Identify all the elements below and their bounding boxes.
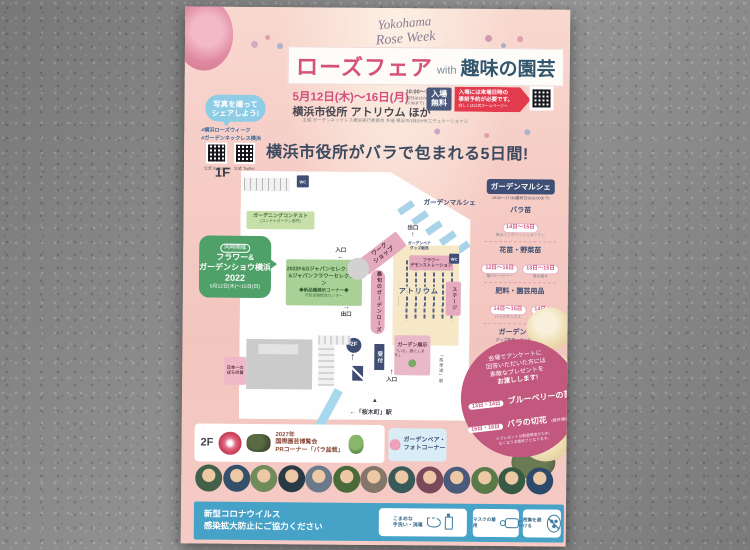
prize-circle: 会場でアンケートに 回答いただいた方には 素敵なプレゼントを お渡しします! 1… [455, 333, 571, 464]
measure-label-mask: マスクの着用 [473, 517, 498, 529]
map-stairs-right [318, 344, 334, 386]
share-line2: シェアしよう! [212, 108, 260, 117]
admission-line2: 無料 [431, 99, 447, 108]
portrait-photo [443, 467, 470, 494]
map-stairs-top [244, 178, 290, 191]
co-event-name1: フラワー& [216, 252, 254, 262]
marche-hours: 10:00〜17:00(最終日は16:00まで) [479, 196, 563, 202]
garden-exhibit-box: ガーデン展示 「いえ、庭にします」 [394, 335, 430, 375]
marche-vendor: 横浜植木 [522, 274, 559, 279]
portrait-photo [223, 465, 250, 492]
mask-icon [504, 518, 519, 528]
portrait-photo [498, 467, 525, 494]
atrium-label: アトリウム [397, 286, 441, 296]
service-block-light [258, 344, 298, 354]
expo-line3: PRコーナー「バラ盆栽」 [275, 447, 343, 455]
portrait-photo [333, 466, 360, 493]
prize-item-note: (提供:横浜植木) [551, 416, 570, 423]
share-hashtags: #横浜ローズウィーク #ガーデンネックレス横浜 [201, 127, 261, 143]
rose-photo-top-left [181, 6, 234, 70]
co-event-name2: ガーデンショウ横浜 [199, 262, 271, 273]
floral-decoration [277, 43, 283, 49]
garden-bear-icon [389, 439, 400, 450]
handwash-icon [427, 517, 441, 527]
measure-label-crowd: 密集を避ける [523, 517, 545, 529]
exit-atrium-top: 出口 ↑ [407, 225, 418, 239]
garden-rose-box: 最旬のガーデンローズ [370, 270, 385, 334]
avoid-crowds-icon [546, 515, 561, 533]
arrow-up-2f: ↑ [350, 352, 355, 363]
portrait-photo [361, 466, 388, 493]
bonsai-photo [246, 434, 270, 452]
qr-code-instagram [206, 143, 227, 164]
rose-fair-flyer: Yokohama Rose Week ローズフェア with 趣味の園芸 5月1… [181, 6, 571, 546]
triangle-mark: ▲ [372, 398, 378, 404]
entrance-bottom-label: 入口 [386, 377, 397, 383]
exhibit-line2: 「いえ、庭にします」 [394, 349, 430, 358]
share-line1: 写真を撮って [213, 99, 258, 108]
entrance-top: 入口 ← [335, 248, 346, 262]
exit-mid-label: 出口 [341, 311, 352, 317]
marche-days: 12日〜16日 [481, 264, 518, 274]
garden-rose-label: 最旬のガーデンローズ [375, 271, 382, 333]
measure-box-handwash: こまめな 手洗い・消毒 [379, 508, 467, 537]
map-garden-marche-label: ガーデンマルシェ [424, 196, 476, 206]
portrait-photo [250, 465, 277, 492]
hashtag-1: #横浜ローズウィーク [201, 127, 261, 135]
wc-icon: WC [297, 175, 309, 187]
measure-label2: 手洗い・消毒 [393, 522, 423, 529]
wc-icon-atrium: WC [449, 254, 459, 264]
contest-line2: (コンテナガーデン部門) [246, 219, 314, 224]
marche-title: ガーデンマルシェ [487, 179, 555, 195]
marche-section-name: 肥料・園芸用品 [478, 286, 562, 297]
organizer-credit: 主催 ガーデンネックレス横浜実行委員会 共催 横浜市/(株)NHKエデュケーショ… [302, 117, 468, 124]
covid-line1: 新型コロナウイルス [204, 509, 323, 522]
prize-days: 15日・16日 [468, 424, 503, 434]
stage-box: ステージ [446, 282, 461, 316]
marche-vendor: 亀川ナーセリー [481, 274, 518, 279]
tree-icon [347, 258, 369, 280]
prize-item: バラの切花 [507, 416, 548, 429]
selection-line4: 市民協働推進センター [305, 293, 343, 298]
title-main: ローズフェア [296, 49, 433, 82]
covid-footer: 新型コロナウイルス 感染拡大防止にご協力ください こまめな 手洗い・消毒 マスク… [194, 501, 564, 542]
no1-rose-line2: ばらの苗 [227, 371, 244, 376]
floral-decoration [251, 41, 258, 48]
photo-corner-line1: ガーデンベア・ [404, 437, 446, 445]
arrow-up-icon: ↑ [407, 231, 418, 239]
measure-box-crowd: 密集を避ける [523, 509, 561, 537]
expo-rose-emblem [218, 431, 241, 454]
floor-1f-label: 1F [215, 165, 230, 180]
floral-decoration [484, 133, 489, 138]
reception-label: 受付 [375, 351, 383, 364]
entrance-bottom: ↑ 入口 [386, 368, 397, 383]
portrait-photo [278, 465, 305, 492]
share-bubble: 写真を撮って シェアしよう! [205, 95, 265, 123]
covid-text: 新型コロナウイルス 感染拡大防止にご協力ください [204, 509, 323, 534]
qr-code-reservation [529, 86, 553, 110]
floor-2f-label: 2F [200, 436, 213, 448]
mascot-photo [349, 434, 364, 453]
floral-decoration [524, 129, 530, 135]
portrait-photo [195, 464, 222, 491]
qr-code-twitter [234, 143, 255, 164]
admission-free-badge: 入場 無料 [426, 87, 451, 110]
gardening-contest-box: ガーデニングコンテスト (コンテナガーデン部門) [246, 211, 314, 230]
stage-label: ステージ [450, 287, 456, 311]
marche-vendor: ハイポネックス [489, 315, 526, 320]
floral-decoration [517, 36, 523, 42]
co-event-bubble-tail [270, 259, 277, 269]
reservation-line3: 詳しくは公式ホームページへ [458, 104, 530, 109]
second-floor-bar: 2F 2027年 国際園芸博覧会 PRコーナー「バラ盆栽」 [194, 423, 384, 463]
arrow-left-icon: ← [335, 254, 346, 262]
headline: 横浜市役所がバラで包まれる5日間! [266, 138, 566, 165]
floral-decoration [434, 129, 440, 135]
title-with: with [437, 65, 457, 77]
co-event-year: 2022 [225, 272, 245, 283]
co-event-date: 5月12日(木)〜15日(日) [210, 283, 261, 290]
portrait-photo [305, 465, 332, 492]
reception-box: 受付 [374, 344, 384, 370]
portrait-photo [526, 467, 553, 494]
prize-item: ブルーベリーの苗 [507, 389, 570, 405]
map-stairs-right-top [318, 336, 350, 345]
bear-photo-corner-box: ガーデンベア・ フォトコーナー [388, 428, 446, 462]
co-event-tag: 同時開催 [220, 243, 250, 252]
co-event-bubble: 同時開催 フラワー& ガーデンショウ横浜 2022 5月12日(木)〜15日(日… [199, 235, 272, 298]
title-banner: ローズフェア with 趣味の園芸 [288, 46, 564, 86]
sanitizer-bottle-icon [445, 516, 453, 529]
escalator-icon [352, 366, 363, 381]
portrait-photo [471, 467, 498, 494]
prize-days: 13日・14日 [469, 400, 504, 410]
reservation-ribbon: 入場には来場日時の 事前予約が必要です。 詳しくは公式ホームページへ [454, 87, 530, 113]
floral-decoration [265, 35, 270, 40]
marche-days: 14日〜15日 [489, 305, 526, 315]
station-bottom-label: ←「桜木町」駅 [350, 407, 392, 416]
marche-days: 14日〜15日 [502, 223, 539, 233]
portrait-photo [416, 466, 443, 493]
share-bubble-tail [222, 121, 230, 127]
arrow-right-icon: → [341, 304, 352, 312]
flower-demo-box: フラワー デモンストレーション [409, 255, 453, 270]
presenter-portraits [195, 464, 553, 494]
to-2f-label: 2F [350, 342, 357, 348]
marche-section-name: 花苗・野菜苗 [478, 245, 562, 256]
marche-days: 13日〜15日 [522, 264, 559, 274]
carpet-background: Yokohama Rose Week ローズフェア with 趣味の園芸 5月1… [0, 0, 750, 550]
demo-line2: デモンストレーション [410, 263, 452, 268]
no1-rose-box: 日本一の ばらの苗 [224, 357, 246, 385]
marche-vendor: 横浜イングリッシュガーデン [478, 233, 562, 239]
measure-box-mask: マスクの着用 [473, 509, 519, 537]
photo-corner-line2: フォトコーナー [403, 445, 445, 453]
portrait-photo [388, 466, 415, 493]
bush-icon [408, 360, 416, 368]
covid-line2: 感染拡大防止にご協力ください [204, 520, 323, 533]
exit-mid: → 出口 [341, 304, 352, 318]
station-side-label: 「馬車道」駅 [438, 353, 444, 384]
title-sub: 趣味の園芸 [460, 53, 555, 81]
arrow-up-icon-entrance: ↑ [386, 368, 397, 377]
